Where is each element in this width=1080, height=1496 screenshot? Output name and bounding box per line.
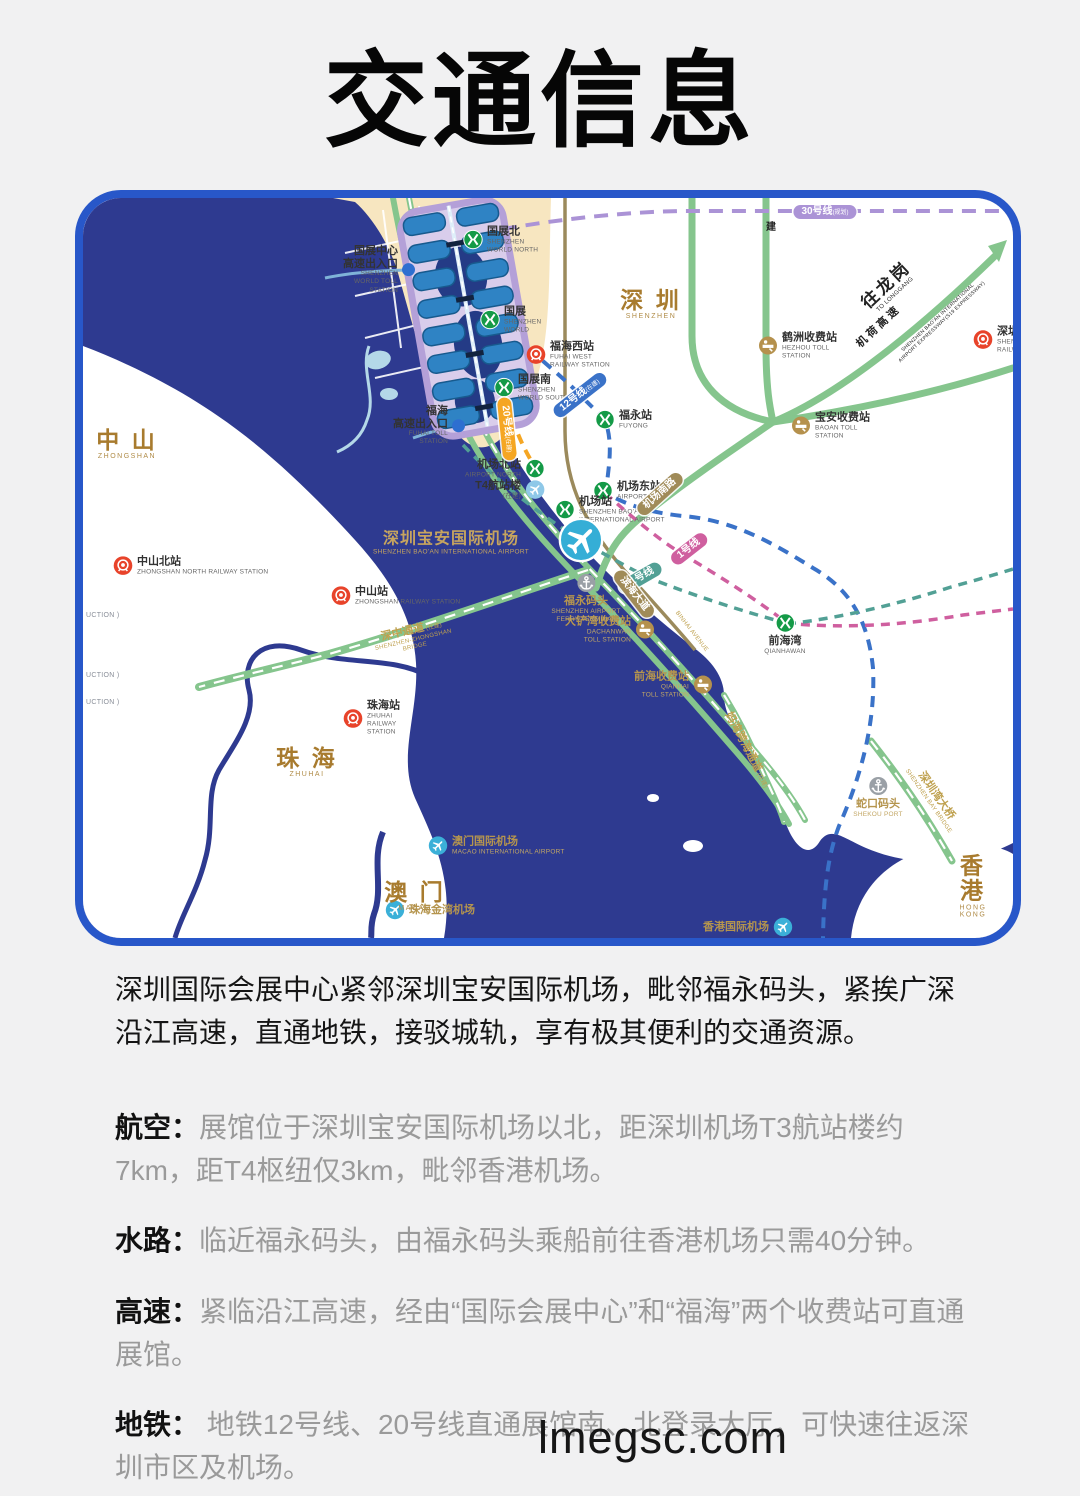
toll-icon [693, 675, 713, 695]
section-aviation-label: 航空： [115, 1112, 199, 1143]
port-shekou: 蛇口码头SHEKOU PORT [853, 776, 902, 819]
section-aviation: 航空：展馆位于深圳宝安国际机场以北，距深圳机场T3航站楼约7km，距T4枢纽仅3… [115, 1106, 975, 1192]
rail-icon [526, 345, 546, 365]
station-airport-north: 机场北站AIRPORT NORTH [465, 459, 545, 480]
label-cut-3: UCTION ) [86, 699, 120, 707]
port-fuyong-ferry: 福永码头SHENZHEN AIRPORTFERRY TERMINAL [551, 573, 620, 624]
pill-line-30: 30号线(规划) [793, 205, 856, 219]
station-qianhaiwan: 前海湾QIANHAWAN [764, 613, 805, 656]
toll-icon [791, 416, 811, 436]
toll-qianhai: 前海收费站QIANHAITOLL STATION [634, 671, 713, 700]
section-waterway-text: 临近福永码头，由福永码头乘船前往香港机场只需40分钟。 [199, 1225, 930, 1256]
planeS-icon [428, 836, 448, 856]
planeB-icon [558, 517, 604, 563]
page: 交通信息 [0, 0, 1080, 1496]
transport-map: 国展北SHENZHENWORLD NORTH国展SHENZHENWORLD国展南… [75, 190, 1021, 946]
intro-paragraph: 深圳国际会展中心紧邻深圳宝安国际机场，毗邻福永码头，紧挨广深沿江高速，直通地铁，… [115, 968, 975, 1054]
rail-icon [113, 556, 133, 576]
pill-line-20: 20号线(在建) [497, 397, 518, 461]
station-zhuhai: 珠海站ZHUHAIRAILWAYSTATION [343, 699, 400, 736]
rail-icon [331, 586, 351, 606]
watermark: lmegsc.com [538, 1412, 788, 1464]
toll-hezhou: 鹤洲收费站HEZHOU TOLLSTATION [758, 332, 837, 361]
station-fuyong: 福永站FUYONG [595, 410, 652, 431]
region-shenzhen: 深 圳SHENZHEN [620, 288, 681, 320]
label-jian: 建 [766, 222, 776, 234]
metro-icon [494, 378, 514, 398]
station-shenzhen-world-north: 国展北SHENZHENWORLD NORTH [463, 226, 538, 255]
region-hongkong: 香 港HONG KONG [953, 854, 993, 919]
anchor-icon [868, 776, 888, 796]
planeS-icon [525, 480, 545, 500]
toll-icon [758, 336, 778, 356]
rail-icon [973, 330, 993, 350]
rail-icon [343, 708, 363, 728]
airport-plane-marker [558, 517, 604, 563]
label-binhai-avenue-en: BINHAI AVENUE [673, 610, 709, 653]
pill-line-1: 1号线 [668, 531, 709, 568]
region-zhuhai: 珠 海ZHUHAI [276, 746, 337, 778]
label-shenzhen-bay-bridge: 深圳湾大桥SHENZHEN BAY BRIDGE [903, 761, 964, 835]
section-expressway-text: 紧临沿江高速，经由“国际会展中心”和“福海”两个收费站可直通展馆。 [115, 1296, 964, 1370]
station-shenzhen-world: 国展SHENZHENWORLD [480, 306, 541, 335]
section-aviation-text: 展馆位于深圳宝安国际机场以北，距深圳机场T3航站楼约7km，距T4枢纽仅3km，… [115, 1112, 904, 1186]
section-expressway: 高速：紧临沿江高速，经由“国际会展中心”和“福海”两个收费站可直通展馆。 [115, 1290, 975, 1376]
map-marker-layer: 国展北SHENZHENWORLD NORTH国展SHENZHENWORLD国展南… [83, 198, 1013, 938]
label-shenzhong-bridge: 深中通道 (在建)SHENZHEN-ZHONGSHANBRIDGE [372, 616, 455, 661]
section-waterway-label: 水路： [115, 1225, 199, 1256]
metro-icon [775, 613, 795, 633]
station-fuhai-west: 福海西站FUHAI WESTRAILWAY STATION [526, 341, 610, 370]
label-cut-1: UCTION ) [86, 612, 120, 620]
metro-icon [525, 459, 545, 479]
section-expressway-label: 高速： [115, 1296, 199, 1327]
label-baoan-airport: 深圳宝安国际机场SHENZHEN BAO'AN INTERNATIONAL AI… [373, 525, 529, 556]
label-mawan-crossing: 妈湾跨海通道 (在建) [722, 710, 773, 790]
metro-icon [463, 230, 483, 250]
station-shenzhen-north: 深圳北站SHENZHEN NORTHRAILWAY STATION [973, 326, 1021, 355]
region-zhongshan: 中 山ZHONGSHAN [96, 428, 157, 460]
section-waterway: 水路：临近福永码头，由福永码头乘船前往香港机场只需40分钟。 [115, 1219, 975, 1262]
entrance-fuhai-toll: 福海高速出入口FUHAI TOLLSTATION [393, 405, 465, 447]
metro-icon [480, 310, 500, 330]
section-metro-label: 地铁： [115, 1409, 199, 1440]
station-t4-terminal: T4航站楼(在建) [475, 480, 545, 501]
anchor-icon [576, 573, 596, 593]
station-zhongshan-north: 中山北站ZHONGSHAN NORTH RAILWAY STATION [113, 556, 268, 577]
toll-icon [635, 620, 655, 640]
metro-icon [595, 410, 615, 430]
airport-macao: 澳门国际机场MACAO INTERNATIONAL AIRPORT [428, 836, 565, 857]
dot-icon [402, 264, 415, 277]
entrance-shenzhen-world-toll: 国展中心高速出入口SHENZHENWORLD TOLLSTATION [343, 245, 415, 295]
dot-icon [452, 420, 465, 433]
station-zhongshan: 中山站ZHONGSHAN RAILWAY STATION [331, 586, 460, 607]
label-cut-2: UCTION ) [86, 672, 120, 680]
airport-hongkong: 香港国际机场 [703, 917, 793, 937]
toll-baoan: 宝安收费站BAOAN TOLLSTATION [791, 412, 870, 441]
planeS-icon [773, 917, 793, 937]
page-title: 交通信息 [0, 16, 1080, 167]
region-macao: 澳 门MACAO [384, 880, 445, 912]
